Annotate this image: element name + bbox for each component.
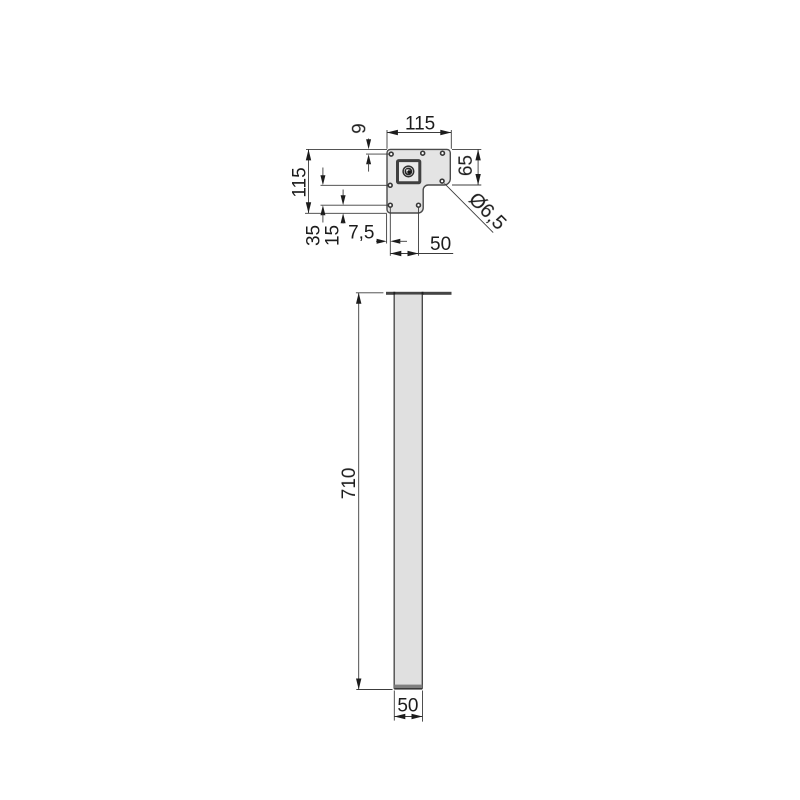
svg-text:115: 115 [290, 167, 311, 197]
svg-text:710: 710 [339, 468, 360, 500]
svg-text:50: 50 [430, 234, 451, 255]
svg-text:50: 50 [397, 695, 418, 716]
svg-text:7,5: 7,5 [348, 222, 374, 243]
svg-text:65: 65 [456, 155, 477, 176]
svg-text:9: 9 [349, 123, 370, 134]
svg-text:115: 115 [405, 114, 435, 135]
svg-text:15: 15 [323, 225, 344, 246]
svg-text:35: 35 [304, 225, 325, 246]
